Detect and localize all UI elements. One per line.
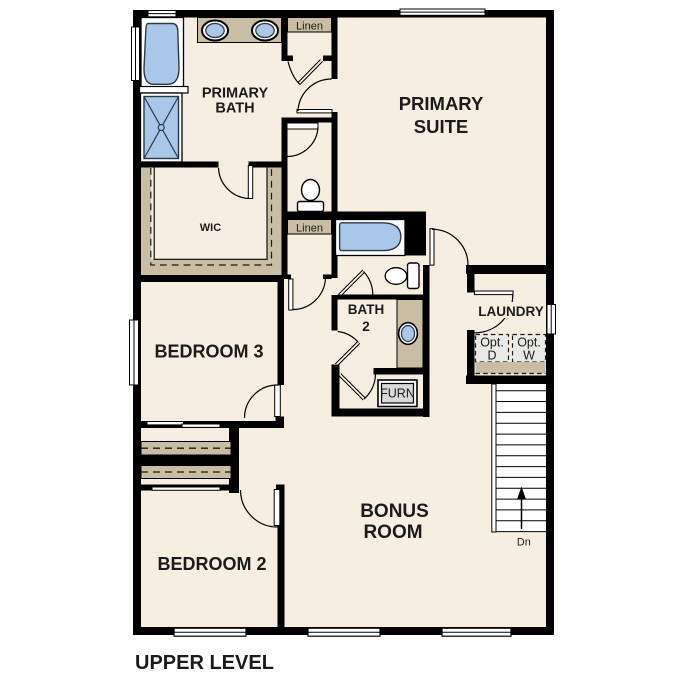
svg-text:Opt.: Opt. bbox=[517, 336, 541, 350]
svg-text:FURN: FURN bbox=[380, 386, 415, 400]
svg-text:PRIMARY: PRIMARY bbox=[202, 86, 269, 102]
svg-text:WIC: WIC bbox=[200, 222, 221, 234]
svg-text:Dn: Dn bbox=[517, 536, 531, 548]
svg-text:D: D bbox=[487, 349, 496, 363]
svg-text:Linen: Linen bbox=[296, 223, 323, 235]
svg-text:BEDROOM 3: BEDROOM 3 bbox=[154, 342, 263, 362]
svg-text:UPPER LEVEL: UPPER LEVEL bbox=[135, 652, 274, 674]
svg-text:BATH: BATH bbox=[348, 302, 385, 317]
svg-text:BONUS: BONUS bbox=[360, 501, 429, 522]
svg-text:LAUNDRY: LAUNDRY bbox=[478, 304, 544, 319]
svg-text:Opt.: Opt. bbox=[480, 336, 504, 350]
svg-text:2: 2 bbox=[362, 319, 370, 334]
svg-text:BEDROOM 2: BEDROOM 2 bbox=[157, 554, 266, 574]
svg-text:SUITE: SUITE bbox=[414, 116, 468, 137]
svg-text:ROOM: ROOM bbox=[363, 522, 422, 543]
svg-text:Linen: Linen bbox=[296, 21, 323, 33]
svg-text:PRIMARY: PRIMARY bbox=[399, 93, 484, 114]
svg-text:BATH: BATH bbox=[215, 101, 254, 117]
svg-text:W: W bbox=[523, 349, 535, 363]
